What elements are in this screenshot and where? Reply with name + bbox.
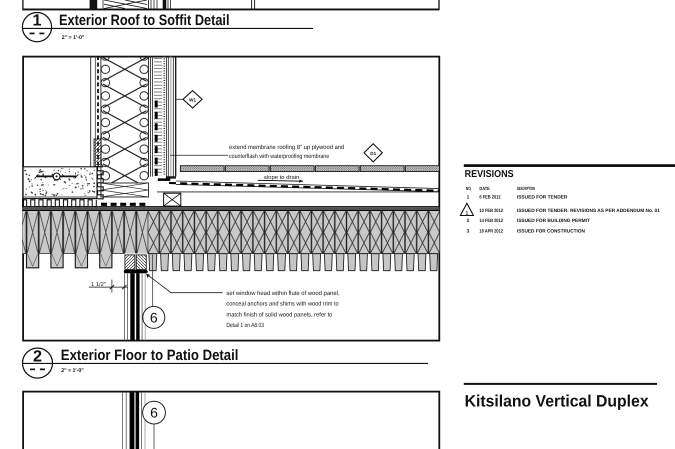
svg-text:NO: NO [466,186,471,191]
svg-text:2: 2 [467,218,470,224]
svg-text:D1: D1 [370,151,376,156]
svg-text:14 FEB 2012: 14 FEB 2012 [479,218,503,224]
svg-text:6 FEB 2012: 6 FEB 2012 [479,195,500,201]
svg-text:Detail 1 on A8.03: Detail 1 on A8.03 [226,322,264,329]
svg-text:match finish of solid wood pan: match finish of solid wood panels, refer… [226,311,333,318]
svg-text:set window head within flute o: set window head within flute of wood pan… [226,290,340,297]
svg-text:1: 1 [467,195,470,201]
svg-text:6: 6 [150,309,158,325]
svg-text:1: 1 [32,12,41,30]
svg-text:ISSUED FOR BUILDING PERMIT: ISSUED FOR BUILDING PERMIT [517,218,590,224]
svg-text:Exterior Floor to Patio Detail: Exterior Floor to Patio Detail [61,347,239,364]
svg-text:2: 2 [33,347,42,365]
svg-text:ISSUED FOR CONSTRUCTION: ISSUED FOR CONSTRUCTION [517,228,586,234]
svg-text:2" = 1'-0": 2" = 1'-0" [61,368,84,374]
svg-text:counterflash with waterproofin: counterflash with waterproofing membrane [229,153,330,160]
svg-text:1 1/2": 1 1/2" [91,281,106,288]
svg-text:10 FEB 2012: 10 FEB 2012 [479,208,503,214]
svg-text:slope to drain: slope to drain [264,174,300,181]
svg-text:REVISIONS: REVISIONS [465,169,514,180]
svg-text:extend membrane roofing 8" up: extend membrane roofing 8" up plywood an… [229,144,344,151]
svg-text:2" = 1'-0": 2" = 1'-0" [62,35,85,41]
svg-text:DATE: DATE [479,186,489,191]
svg-text:ISSUED FOR TENDER: ISSUED FOR TENDER [517,195,568,201]
svg-text:1: 1 [466,210,469,216]
svg-text:Kitsilano Vertical Duplex: Kitsilano Vertical Duplex [465,393,650,411]
svg-text:ISSUED FOR TENDER: REVISIONS A: ISSUED FOR TENDER: REVISIONS AS PER ADDE… [517,208,660,214]
svg-text:3: 3 [467,228,470,234]
svg-text:conceal anchors and shims with: conceal anchors and shims with wood trim… [226,301,339,308]
svg-text:6: 6 [150,405,158,421]
svg-text:DESCRIPTION: DESCRIPTION [517,186,535,191]
svg-text:18 APR 2012: 18 APR 2012 [479,228,503,234]
svg-text:W1: W1 [189,97,196,102]
svg-text:Exterior Roof to Soffit Detail: Exterior Roof to Soffit Detail [59,12,230,29]
